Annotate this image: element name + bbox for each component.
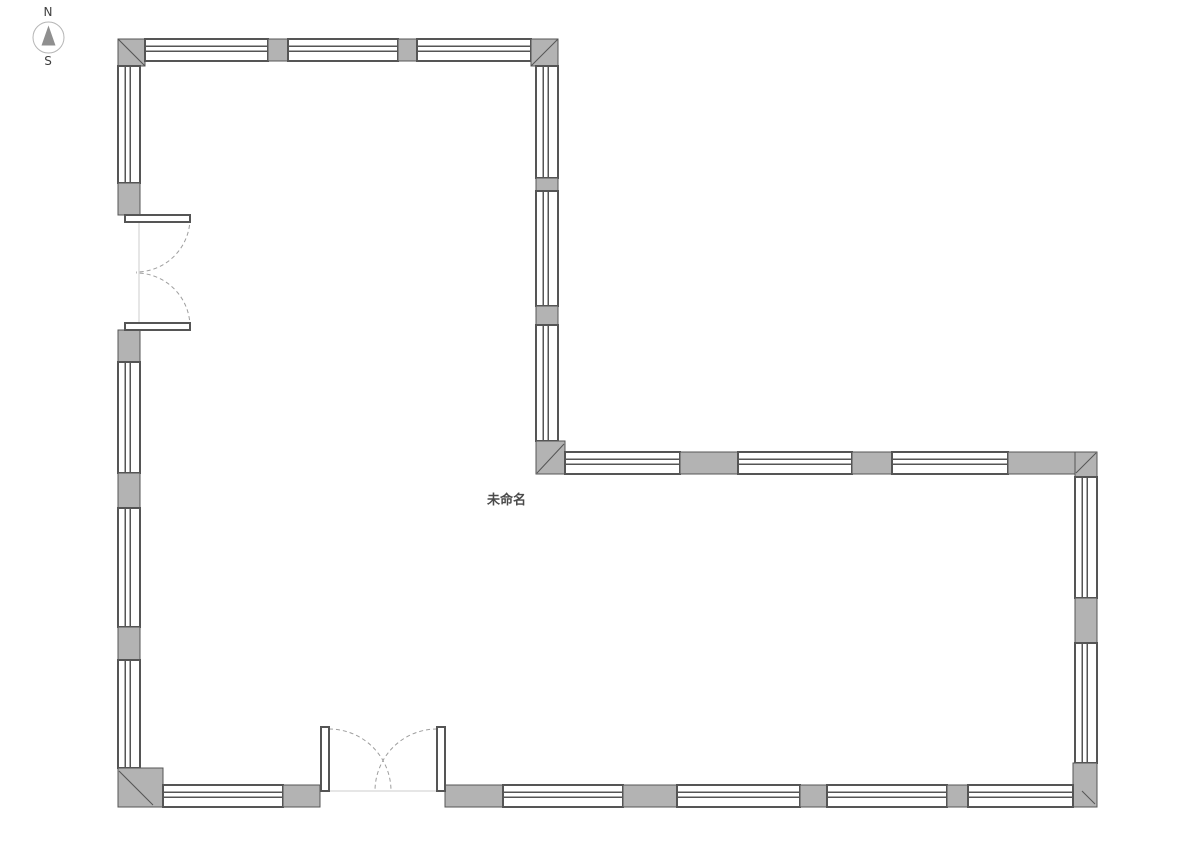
wall-pier[interactable]	[536, 178, 558, 191]
wall-pier[interactable]	[623, 785, 677, 807]
wall-pier[interactable]	[852, 452, 892, 474]
wall-pier[interactable]	[947, 785, 968, 807]
door-panel[interactable]	[437, 727, 445, 791]
compass: N S	[31, 6, 65, 69]
wall-pier[interactable]	[800, 785, 827, 807]
compass-south-label: S	[44, 55, 52, 69]
wall-window-segment[interactable]	[503, 785, 623, 807]
wall-window-segment[interactable]	[288, 39, 398, 61]
wall-window-segment[interactable]	[968, 785, 1073, 807]
room-name-label[interactable]: 未命名	[487, 489, 526, 508]
wall-window-segment[interactable]	[565, 452, 680, 474]
wall-pier[interactable]	[680, 452, 738, 474]
wall-window-segment[interactable]	[118, 66, 140, 183]
wall-window-segment[interactable]	[163, 785, 283, 807]
door-panel[interactable]	[125, 323, 190, 330]
wall-window-segment[interactable]	[1075, 643, 1097, 763]
wall-pier[interactable]	[1008, 452, 1075, 474]
wall-window-segment[interactable]	[677, 785, 800, 807]
floorplan-drawing	[0, 0, 1191, 842]
wall-pier[interactable]	[118, 330, 140, 362]
wall-pier[interactable]	[536, 306, 558, 325]
floorplan-canvas: N S 未命名	[0, 0, 1191, 842]
wall-window-segment[interactable]	[1075, 477, 1097, 598]
wall-window-segment[interactable]	[118, 660, 140, 768]
door-panel[interactable]	[125, 215, 190, 222]
wall-pier[interactable]	[118, 183, 140, 215]
wall-window-segment[interactable]	[827, 785, 947, 807]
compass-rose-icon	[32, 21, 65, 54]
door-swing-arc	[375, 729, 437, 791]
door-swing-arc	[136, 218, 190, 272]
wall-corner[interactable]	[1073, 763, 1097, 807]
wall-pier[interactable]	[398, 39, 417, 61]
compass-needle-icon	[41, 25, 55, 45]
wall-corner[interactable]	[118, 768, 163, 807]
wall-window-segment[interactable]	[118, 508, 140, 627]
wall-window-segment[interactable]	[536, 66, 558, 178]
wall-pier[interactable]	[268, 39, 288, 61]
wall-window-segment[interactable]	[417, 39, 531, 61]
wall-pier[interactable]	[118, 627, 140, 660]
wall-pier[interactable]	[118, 473, 140, 508]
wall-window-segment[interactable]	[536, 325, 558, 441]
door-swing-arc	[329, 729, 391, 791]
wall-window-segment[interactable]	[892, 452, 1008, 474]
wall-window-segment[interactable]	[536, 191, 558, 306]
wall-pier[interactable]	[445, 785, 503, 807]
door-panel[interactable]	[321, 727, 329, 791]
wall-pier[interactable]	[283, 785, 320, 807]
wall-window-segment[interactable]	[145, 39, 268, 61]
wall-pier[interactable]	[1075, 598, 1097, 643]
wall-window-segment[interactable]	[118, 362, 140, 473]
wall-window-segment[interactable]	[738, 452, 852, 474]
compass-north-label: N	[44, 6, 53, 20]
door-swing-arc	[136, 273, 190, 327]
